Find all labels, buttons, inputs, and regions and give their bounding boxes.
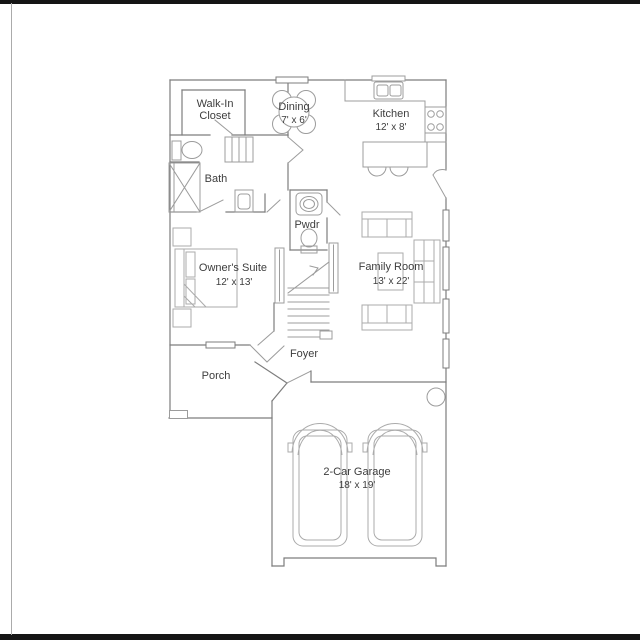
bath-vanity-icon <box>235 190 253 212</box>
garage-entry-door <box>287 371 311 383</box>
walk-in-closet-label-2: Closet <box>199 110 230 122</box>
nightstand-icon <box>173 228 191 246</box>
family-room-dims: 13' x 22' <box>373 276 410 287</box>
dining-dims: 7' x 6' <box>281 115 307 126</box>
family-room-window-3 <box>443 299 449 333</box>
nightstand-icon <box>173 309 191 327</box>
bath-door <box>199 200 223 212</box>
dining-window <box>276 77 308 83</box>
range-icon <box>425 107 446 133</box>
front-door <box>250 345 284 362</box>
family-room-label: Family Room <box>359 261 424 273</box>
porch-post <box>170 411 188 419</box>
stair-arrow <box>310 266 318 275</box>
stool-icon <box>390 167 408 176</box>
walk-in-closet-label: Walk-In <box>197 98 234 110</box>
garage-label: 2-Car Garage <box>323 466 390 478</box>
owners-suite-dims: 12' x 13' <box>216 277 253 288</box>
back-door <box>433 175 446 198</box>
closet-door <box>215 120 232 134</box>
dining-label: Dining <box>278 101 309 113</box>
porch-label: Porch <box>202 370 231 382</box>
owners-suite-window <box>206 342 235 348</box>
kitchen-dims: 12' x 8' <box>375 122 406 133</box>
family-room-window-4 <box>443 339 449 368</box>
owners-suite-label: Owner's Suite <box>199 262 267 274</box>
foyer-label: Foyer <box>290 348 318 360</box>
kitchen-island-icon <box>363 142 427 176</box>
stairs <box>275 243 338 339</box>
kitchen-label: Kitchen <box>373 108 410 120</box>
powder-door <box>327 202 340 215</box>
bath-label: Bath <box>205 173 228 185</box>
floor-plan: Walk-In Closet Dining 7' x 6' Kitchen 12… <box>0 0 640 640</box>
sofa-top-icon <box>362 212 412 237</box>
hall-door <box>288 137 303 163</box>
water-heater-icon <box>427 388 445 406</box>
stool-icon <box>368 167 386 176</box>
owners-suite-door <box>258 331 274 345</box>
garage-door <box>272 558 446 566</box>
shower-icon <box>169 163 200 212</box>
linen-shelves-icon <box>225 137 253 162</box>
kitchen-window <box>372 76 405 81</box>
garage-dims: 18' x 19' <box>339 480 376 491</box>
family-room-window-1 <box>443 210 449 241</box>
powder-sink-icon <box>296 193 322 215</box>
sofa-bottom-icon <box>362 305 412 330</box>
hall-door-2 <box>267 200 280 212</box>
toilet-icon <box>172 141 202 160</box>
family-room-window-2 <box>443 247 449 290</box>
powder-label: Pwdr <box>294 219 319 231</box>
